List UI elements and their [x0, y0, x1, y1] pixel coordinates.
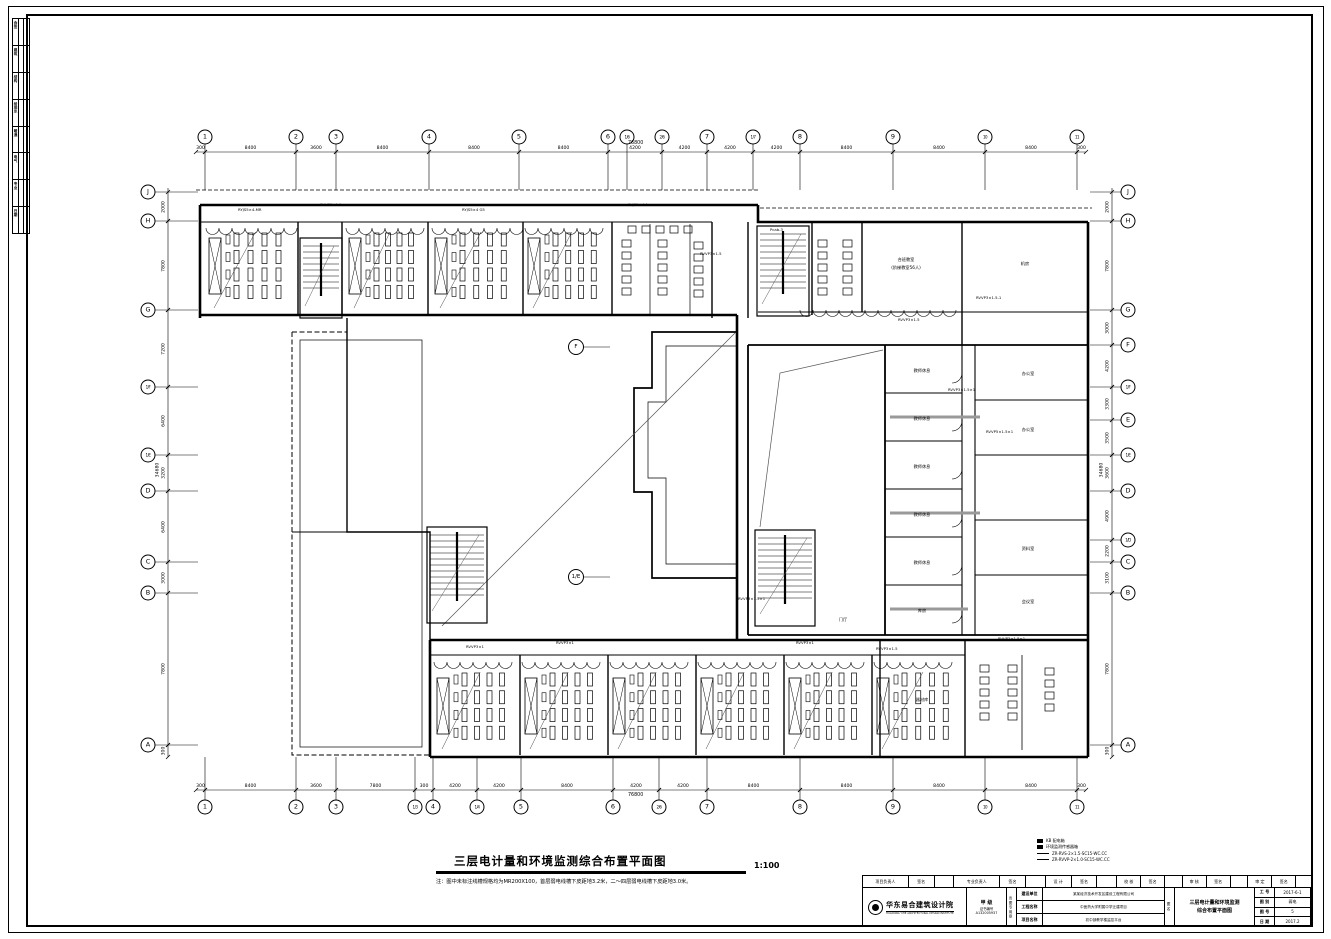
room-label: 教师休息 [914, 560, 931, 566]
room-label: 教师休息 [914, 416, 931, 422]
grid-axis-bubble-top: 7 [700, 130, 715, 145]
dimension-top: 8400 [468, 146, 480, 151]
dimension-left: 3000 [162, 572, 167, 584]
grid-axis-bubble-top: 11 [1070, 130, 1085, 145]
meta-value: 弱电 [1275, 898, 1310, 907]
titleblock-empty-cell [935, 876, 955, 887]
drawing-title: 三层电计量和环境监测综合布置平面图 [436, 853, 856, 869]
room-label: 资料室 [1022, 546, 1035, 552]
dimension-right: 3600 [1106, 467, 1111, 479]
grid-axis-bubble-top: 4 [422, 130, 437, 145]
project-field-value: 初中部教学楼监控平台 [1043, 914, 1164, 926]
cable-label: RVVP3×1.5 [876, 646, 898, 651]
titleblock-role-cell: 签名 [1207, 876, 1231, 887]
dimension-right: 2000 [1106, 201, 1111, 213]
grid-axis-bubble-bottom: 1/4 [470, 800, 485, 815]
dimension-right: 7800 [1106, 663, 1111, 675]
grid-axis-bubble-top: 3 [329, 130, 344, 145]
meta-label: 工 号 [1255, 888, 1275, 897]
titleblock-role-cell: 校 核 [1117, 876, 1141, 887]
dimension-bottom: 8400 [748, 784, 760, 789]
room-label: 教师休息 [914, 464, 931, 470]
institute-name-en: HUADONG YIHE ARCHITECTURAL DESIGN INSTIT… [886, 911, 954, 915]
cable-label: RVVP3×1 [556, 640, 574, 645]
titleblock-role-cell: 审 核 [1183, 876, 1207, 887]
dimension-top: 8400 [558, 146, 570, 151]
grid-axis-bubble-bottom: 8 [793, 800, 808, 815]
titleblock-role-cell: 签名 [1000, 876, 1026, 887]
grid-axis-bubble-right: A [1121, 738, 1136, 753]
titleblock-role-cell: 项目负责人 [863, 876, 909, 887]
dimension-bottom: 300 [1077, 784, 1086, 789]
grid-axis-bubble-bottom: 2 [289, 800, 304, 815]
grid-axis-bubble-left: J [141, 185, 156, 200]
grid-axis-bubble-top: 10 [978, 130, 993, 145]
dimension-left: 6400 [162, 415, 167, 427]
axis-ref-bubble: 1/E [568, 569, 584, 585]
cable-label: RYJS5×4-1 [628, 202, 648, 207]
grid-axis-bubble-right: D [1121, 484, 1136, 499]
legend-box-symbol [1037, 845, 1043, 849]
dimension-top: 8400 [933, 146, 945, 151]
grid-axis-bubble-top: 2 [289, 130, 304, 145]
legend-label: ZR-RVS-2×1.5-SC15-WC.CC [1052, 851, 1107, 856]
meta-label: 图 号 [1255, 908, 1275, 917]
dimension-top: 8400 [245, 146, 257, 151]
dimension-bottom: 8400 [245, 784, 257, 789]
titleblock-empty-cell [1026, 876, 1046, 887]
drawing-meta: 工 号2017-6-1图 别弱电图 号5日 期2017.2 [1255, 888, 1311, 926]
grid-axis-bubble-bottom: 2/6 [652, 800, 667, 815]
dimension-left: 3200 [162, 467, 167, 479]
dimension-bottom: 4200 [449, 784, 461, 789]
project-field-row: 工程名称中医药大学附属中学迁建项目 [1017, 901, 1164, 914]
project-field-row: 建设单位某某经济技术开发区建设工程有限公司 [1017, 888, 1164, 901]
meta-row: 图 别弱电 [1255, 898, 1310, 908]
grid-axis-bubble-top: 1 [198, 130, 213, 145]
dimension-right: 300 [1106, 747, 1111, 756]
title-underline [436, 871, 746, 874]
dimension-bottom: 4200 [677, 784, 689, 789]
dimension-bottom: 8400 [841, 784, 853, 789]
grid-axis-bubble-top: 6 [601, 130, 616, 145]
dimension-bottom: 7800 [370, 784, 382, 789]
dimension-right: 3300 [1106, 398, 1111, 410]
room-label: 器材库 [916, 697, 929, 703]
room-label: 办公室 [1022, 427, 1035, 433]
dimension-right: 3500 [1106, 432, 1111, 444]
dimension-top: 3600 [310, 146, 322, 151]
dimension-bottom: 4200 [493, 784, 505, 789]
room-label: 门厅 [839, 617, 847, 623]
dimension-bottom: 300 [196, 784, 205, 789]
grid-axis-bubble-bottom: 9 [886, 800, 901, 815]
dimension-top: 300 [196, 146, 205, 151]
project-field-value: 中医药大学附属中学迁建项目 [1043, 901, 1164, 913]
room-label: 办公室 [1022, 371, 1035, 377]
grid-axis-bubble-top: 8 [793, 130, 808, 145]
drawing-scale: 1:100 [754, 861, 779, 870]
grid-axis-bubble-left: 1/F [141, 380, 156, 395]
titleblock-role-cell: 签名 [1272, 876, 1296, 887]
dimension-top: 4200 [679, 146, 691, 151]
dimension-top: 4200 [724, 146, 736, 151]
certificate-number: A132005937 [976, 911, 998, 915]
legend-line-symbol [1037, 859, 1049, 860]
project-field-label: 项目名称 [1017, 914, 1043, 926]
room-label: 教师休息 [914, 368, 931, 374]
legend-label: ZR-RVVP-2×1.0-SC15-WC.CC [1052, 857, 1110, 862]
dimension-right: 2200 [1106, 545, 1111, 557]
cable-label: RYJS5×4 G5 [462, 207, 485, 212]
dimension-right: 7800 [1106, 260, 1111, 272]
meta-row: 图 号5 [1255, 908, 1310, 918]
titleblock-signature-row: 项目负责人签名专业负责人签名设 计签名校 核签名审 核签名审 定签名 [863, 876, 1312, 888]
grid-axis-bubble-top: 9 [886, 130, 901, 145]
dimension-bottom: 4200 [630, 784, 642, 789]
grid-axis-bubble-bottom: 7 [700, 800, 715, 815]
meta-value: 2017-6-1 [1275, 888, 1310, 897]
grid-axis-bubble-top: 2/6 [655, 130, 670, 145]
grid-axis-bubble-right: G [1121, 303, 1136, 318]
cable-label: RVVP3×1.5 [898, 317, 920, 322]
grid-axis-bubble-top: 1/7 [746, 130, 761, 145]
grid-axis-bubble-bottom: 1/3 [408, 800, 423, 815]
legend-line-symbol [1037, 853, 1049, 854]
titleblock-role-cell: 专业负责人 [954, 876, 1000, 887]
meta-label: 日 期 [1255, 917, 1275, 926]
titleblock-role-cell: 签名 [909, 876, 935, 887]
grid-axis-bubble-right: E [1121, 413, 1136, 428]
cable-label: RVVP3×1.5×1 [738, 596, 765, 601]
grid-axis-bubble-bottom: 1 [198, 800, 213, 815]
overall-dimension-left: 34680 [156, 463, 161, 478]
drawing-note: 注：图中未标注线槽规格均为MR200X100，首层弱电线槽下皮距地3.2米，二～… [436, 878, 856, 885]
project-field-label: 工程名称 [1017, 901, 1043, 913]
cable-label: Pcab-3 [770, 227, 783, 232]
dimension-left: 2000 [162, 201, 167, 213]
legend-row: ZR-RVVP-2×1.0-SC15-WC.CC [1037, 856, 1110, 862]
dimension-top: 300 [1077, 146, 1086, 151]
project-field-row: 项目名称初中部教学楼监控平台 [1017, 914, 1164, 926]
meta-value: 2017.2 [1275, 917, 1310, 926]
titleblock-empty-cell [1165, 876, 1183, 887]
titleblock-role-cell: 审 定 [1248, 876, 1272, 887]
grid-axis-bubble-right: F [1121, 338, 1136, 353]
cable-label: RVVP3×1.5 [700, 251, 722, 256]
titleblock-role-cell: 设 计 [1046, 876, 1072, 887]
meta-value: 5 [1275, 908, 1310, 917]
grid-axis-bubble-left: D [141, 484, 156, 499]
drawing-name-cell: 三层电计量和环境监测 综合布置平面图 [1175, 888, 1255, 926]
dimension-top: 8400 [841, 146, 853, 151]
dimension-left: 6400 [162, 521, 167, 533]
dimension-bottom: 300 [420, 784, 429, 789]
grid-axis-bubble-right: B [1121, 586, 1136, 601]
cable-label: RVVP3×1 [796, 640, 814, 645]
dimension-bottom: 8400 [933, 784, 945, 789]
name-column: 图名 [1165, 888, 1175, 926]
stamp-column: 出图专用章 [1007, 888, 1017, 926]
grid-axis-bubble-right: 1/D [1121, 533, 1136, 548]
overall-dimension-bottom: 76800 [628, 793, 643, 798]
cable-label: RVVP3×1.5-1 [976, 295, 1001, 300]
certificate-grade: 甲 级 [981, 899, 993, 906]
grid-axis-bubble-right: H [1121, 214, 1136, 229]
titleblock-empty-cell [1097, 876, 1117, 887]
dimension-right: 3000 [1106, 322, 1111, 334]
dimension-left: 7800 [162, 260, 167, 272]
titleblock-role-cell: 签名 [1072, 876, 1098, 887]
meta-row: 日 期2017.2 [1255, 917, 1310, 926]
room-label: 会议室 [1022, 599, 1035, 605]
overall-dimension-right: 34680 [1100, 463, 1105, 478]
grid-axis-bubble-bottom: 11 [1070, 800, 1085, 815]
titleblock-empty-cell [1231, 876, 1249, 887]
dimension-right: 4900 [1106, 510, 1111, 522]
institute-name: 华东易合建筑设计院 [886, 900, 954, 910]
grid-axis-bubble-left: A [141, 738, 156, 753]
drawing-title-block: 三层电计量和环境监测综合布置平面图 1:100 注：图中未标注线槽规格均为MR2… [436, 853, 856, 885]
dimension-top: 8400 [377, 146, 389, 151]
dimension-top: 8400 [1025, 146, 1037, 151]
design-institute-cell: 华东易合建筑设计院 HUADONG YIHE ARCHITECTURAL DES… [863, 888, 967, 926]
grid-axis-bubble-bottom: 3 [329, 800, 344, 815]
grid-axis-bubble-left: 1/E [141, 448, 156, 463]
grid-axis-bubble-right: 1/E [1121, 448, 1136, 463]
room-label: 库房 [918, 608, 926, 614]
axis-ref-bubble: F [568, 339, 584, 355]
legend-label: 环境监测传感器箱 [1046, 844, 1078, 850]
legend: KB 配电箱环境监测传感器箱ZR-RVS-2×1.5-SC15-WC.CCZR-… [1037, 838, 1110, 862]
cable-label: RVVP3×1.5×1 [948, 387, 975, 392]
certificate-cell: 甲 级 证书编号 A132005937 [967, 888, 1007, 926]
grid-axis-bubble-left: G [141, 303, 156, 318]
grid-axis-bubble-right: C [1121, 555, 1136, 570]
titleblock-role-cell: 签名 [1141, 876, 1165, 887]
meta-row: 工 号2017-6-1 [1255, 888, 1310, 898]
cable-label: RVVP3×1.5 [320, 202, 342, 207]
drawing-sheet: 会签建筑结构给排水暖通电气专业日期 [0, 0, 1331, 939]
titleblock-main-row: 华东易合建筑设计院 HUADONG YIHE ARCHITECTURAL DES… [863, 888, 1312, 926]
dimension-left: 7200 [162, 343, 167, 355]
grid-axis-bubble-top: 5 [512, 130, 527, 145]
dimension-left: 300 [162, 747, 167, 756]
cable-label: RVVP5×1.5×1 [986, 429, 1013, 434]
titleblock-empty-cell [1296, 876, 1312, 887]
dimension-left: 7800 [162, 663, 167, 675]
project-field-value: 某某经济技术开发区建设工程有限公司 [1043, 888, 1164, 900]
overall-dimension-top: 76800 [628, 141, 643, 146]
legend-box-symbol [1037, 839, 1043, 843]
dimension-right: 3100 [1106, 572, 1111, 584]
cable-label: RVVP3×1.5×1 [998, 636, 1025, 641]
project-fields: 建设单位某某经济技术开发区建设工程有限公司工程名称中医药大学附属中学迁建项目项目… [1017, 888, 1165, 926]
grid-axis-bubble-left: H [141, 214, 156, 229]
titleblock: 项目负责人签名专业负责人签名设 计签名校 核签名审 核签名审 定签名 华东易合建… [862, 875, 1312, 926]
dimension-bottom: 8400 [561, 784, 573, 789]
dimension-bottom: 3600 [310, 784, 322, 789]
grid-axis-bubble-left: C [141, 555, 156, 570]
grid-axis-bubble-bottom: 6 [606, 800, 621, 815]
grid-axis-bubble-bottom: 10 [978, 800, 993, 815]
dimension-top: 4200 [771, 146, 783, 151]
meta-label: 图 别 [1255, 898, 1275, 907]
dimension-right: 4200 [1106, 360, 1111, 372]
room-label: 合班教室 [898, 257, 915, 263]
grid-axis-bubble-right: 1/F [1121, 380, 1136, 395]
cable-label: RVVP3×1 [466, 644, 484, 649]
project-field-label: 建设单位 [1017, 888, 1043, 900]
institute-logo-icon [868, 900, 883, 915]
grid-axis-bubble-left: B [141, 586, 156, 601]
dimension-bottom: 8400 [1025, 784, 1037, 789]
cable-label: RYJS5×4-MR [238, 207, 262, 212]
grid-axis-bubble-bottom: 5 [514, 800, 529, 815]
room-label: 机房 [1021, 261, 1029, 267]
room-label: (阶梯教室56人) [891, 265, 921, 271]
grid-axis-bubble-bottom: 4 [426, 800, 441, 815]
dimension-top: 4200 [629, 146, 641, 151]
grid-axis-bubble-right: J [1121, 185, 1136, 200]
room-label: 教师休息 [914, 512, 931, 518]
